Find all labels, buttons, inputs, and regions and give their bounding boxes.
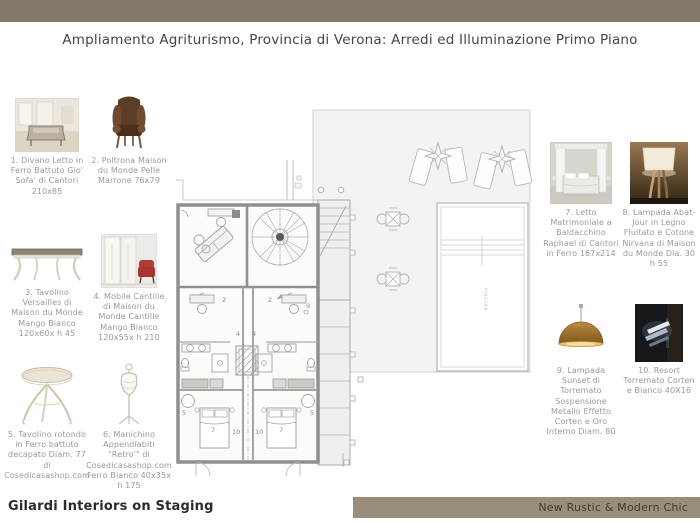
round-table-photo <box>17 362 77 426</box>
svg-text:10: 10 <box>232 428 240 436</box>
tv-cabinet <box>232 210 240 218</box>
resort-wall-lamp-photo <box>635 302 683 362</box>
catalog-item-8: 8. Lampada Abat-Jour in Legno Fluitato e… <box>620 140 698 269</box>
pool: PISCINA <box>437 203 528 371</box>
wardrobe <box>182 379 208 388</box>
svg-text:2: 2 <box>222 296 226 304</box>
svg-text:2: 2 <box>268 296 272 304</box>
pool-label: PISCINA <box>482 288 488 312</box>
svg-text:5: 5 <box>182 409 186 417</box>
sunset-pendant-photo <box>551 302 611 362</box>
catalog-caption: 1. Divano Letto in Ferro Battuto Gio' So… <box>8 156 86 197</box>
svg-text:7: 7 <box>279 426 283 434</box>
catalog-caption: 3. Tavolino Versailles di Maison du Mond… <box>8 288 86 339</box>
wardrobe <box>288 379 314 388</box>
armchair-photo <box>108 96 150 152</box>
catalog-item-4: 4. Mobile Cantille di Maison du Monde Ca… <box>90 232 168 343</box>
catalog-caption: 9. Lampada Sunset di Torremato Sospensio… <box>542 366 620 438</box>
spiral-staircase <box>252 209 308 265</box>
mannequin-rack-photo <box>110 362 148 426</box>
catalog-caption: 4. Mobile Cantille di Maison du Monde Ca… <box>90 292 168 343</box>
building <box>178 205 318 462</box>
cabinet-photo <box>101 232 157 288</box>
catalog-caption: 7. Letto Matrimoniale a Baldacchino Raph… <box>542 208 620 259</box>
svg-text:10: 10 <box>255 428 263 436</box>
service-shaft <box>236 346 258 375</box>
studio-signature: Gilardi Interiors on Staging <box>8 499 214 514</box>
catalog-item-10: 10. Resort Torremato Corten e Bianco 40X… <box>620 302 698 397</box>
catalog-item-7: 7. Letto Matrimoniale a Baldacchino Raph… <box>542 140 620 259</box>
catalog-item-6: 6. Manichino Appendiabiti "Retro'" di Co… <box>90 362 168 491</box>
svg-text:9: 9 <box>306 302 310 310</box>
console-table-photo <box>10 240 84 284</box>
svg-text:4: 4 <box>252 330 256 338</box>
catalog-caption: 10. Resort Torremato Corten e Bianco 40X… <box>620 366 698 397</box>
catalog-item-3: 3. Tavolino Versailles di Maison du Mond… <box>8 240 86 339</box>
catalog-item-1: 1. Divano Letto in Ferro Battuto Gio' So… <box>8 96 86 197</box>
catalog-caption: 8. Lampada Abat-Jour in Legno Fluitato e… <box>620 208 698 269</box>
catalog-item-2: 2. Poltrona Maison du Monde Pelle Marron… <box>90 96 168 187</box>
moodboard-slide: Ampliamento Agriturismo, Provincia di Ve… <box>0 0 700 525</box>
catalog-caption: 5. Tavolino rotondo in Ferro battuto dec… <box>4 430 90 481</box>
catalog-item-5: 5. Tavolino rotondo in Ferro battuto dec… <box>8 362 86 481</box>
svg-text:5: 5 <box>310 409 314 417</box>
entry-doors <box>196 462 300 476</box>
top-accent-bar <box>0 0 700 22</box>
svg-text:4: 4 <box>236 330 240 338</box>
catalog-item-9: 9. Lampada Sunset di Torremato Sospensio… <box>542 302 620 438</box>
abat-jour-lamp-photo <box>630 140 688 204</box>
sofa-bed-photo <box>15 96 79 152</box>
canopy-bed-photo <box>550 140 612 204</box>
footer-style-bar: New Rustic & Modern Chic <box>353 497 700 518</box>
svg-text:7: 7 <box>211 426 215 434</box>
catalog-caption: 2. Poltrona Maison du Monde Pelle Marron… <box>90 156 168 187</box>
style-tagline: New Rustic & Modern Chic <box>538 501 688 514</box>
floor-plan: PISCINA <box>160 90 540 480</box>
page-title: Ampliamento Agriturismo, Provincia di Ve… <box>0 32 700 48</box>
